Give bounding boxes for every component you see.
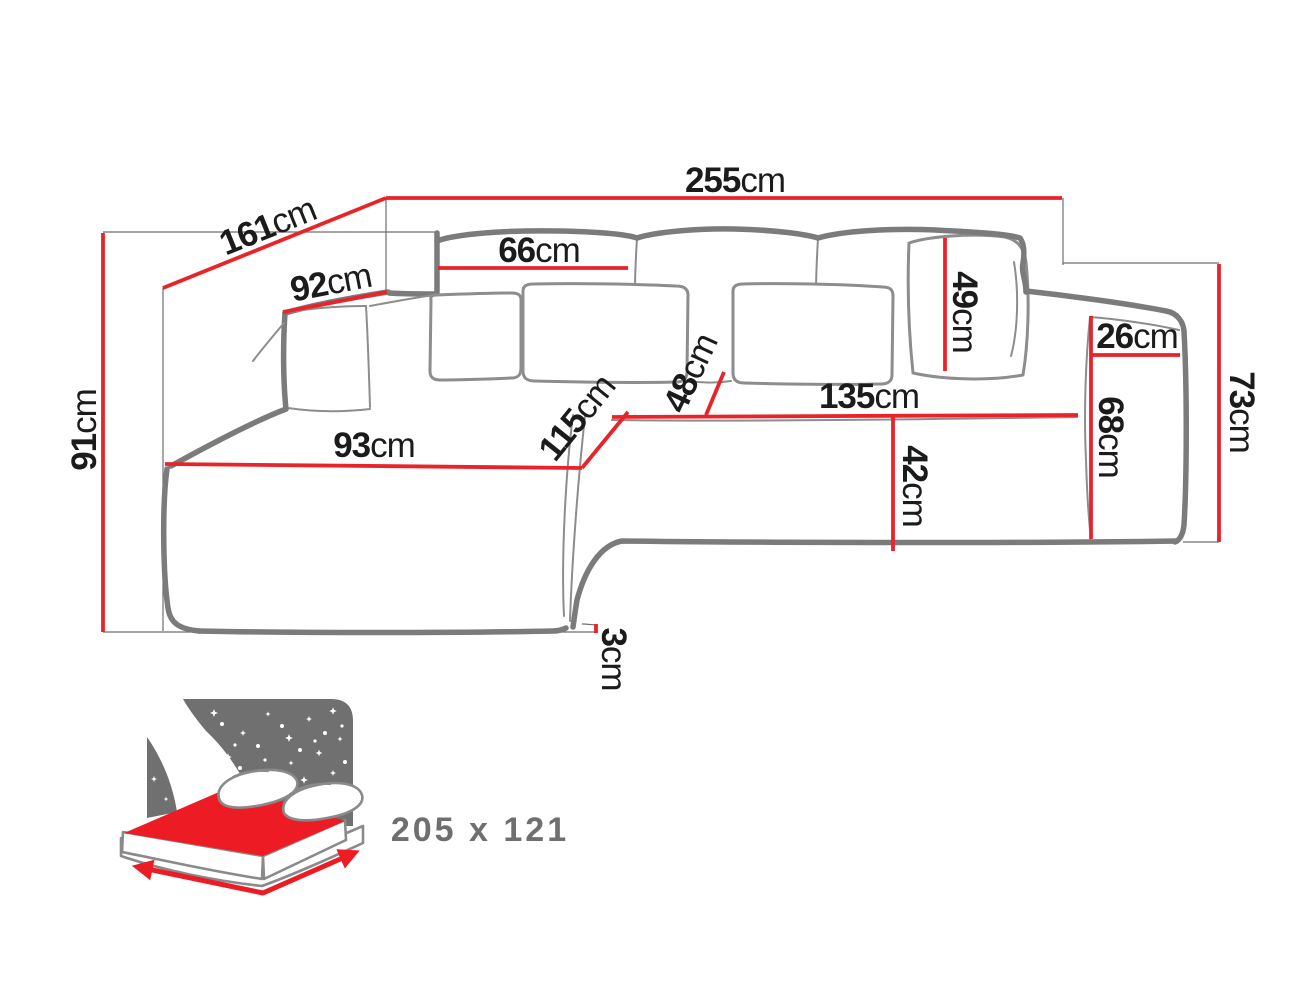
- dim-label-armrest-top: 26cm: [1096, 317, 1178, 356]
- dim-label-back-cushion-w: 66cm: [498, 231, 580, 270]
- sleeping-function-bed-icon: [121, 699, 363, 893]
- corner-backrest: [253, 292, 433, 411]
- dim-label-chaise-length: 161cm: [214, 190, 321, 264]
- dim-label-corner-back: 92cm: [287, 256, 375, 310]
- dim-label-chaise-width: 93cm: [333, 426, 415, 465]
- dim-label-total-width: 255cm: [685, 161, 785, 200]
- pillow: [733, 284, 893, 385]
- dim-label-seat-front-h: 42cm: [895, 445, 934, 527]
- dim-label-total-height: 91cm: [65, 389, 104, 471]
- pillow: [430, 293, 521, 380]
- night-panel-sliver: [147, 737, 177, 818]
- pillow: [523, 284, 688, 383]
- dim-label-clearance: 3cm: [594, 627, 633, 690]
- dim-label-seat-width: 135cm: [819, 377, 919, 416]
- seat-bottom-edge: [573, 541, 1177, 627]
- throw-pillows: [430, 284, 893, 385]
- dim-label-armrest-front-h: 68cm: [1091, 396, 1130, 478]
- diagram-canvas: 255cm 161cm 92cm 66cm 49cm 26cm 68cm 73c…: [0, 0, 1315, 986]
- dim-label-back-cushion-h: 49cm: [945, 271, 984, 353]
- sofa-dimension-diagram: 255cm 161cm 92cm 66cm 49cm 26cm 68cm 73c…: [0, 0, 1315, 986]
- sleeping-area-label: 205 x 121: [391, 811, 569, 849]
- dim-label-armrest-total-h: 73cm: [1222, 371, 1261, 453]
